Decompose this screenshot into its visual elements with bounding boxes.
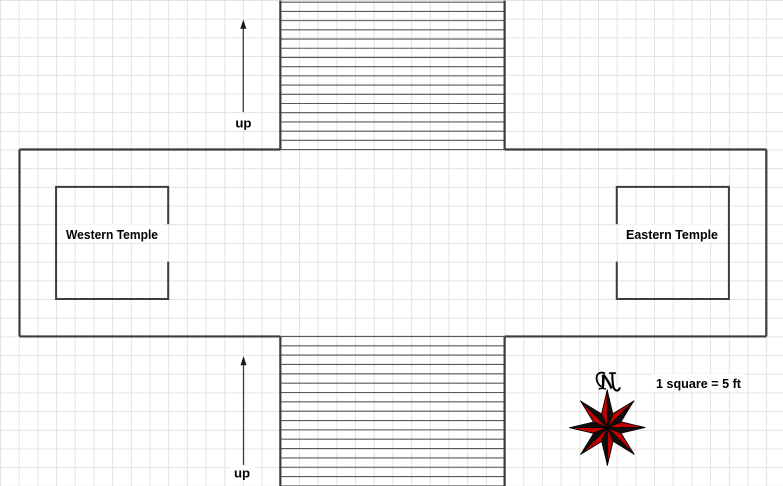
svg-text:up: up [234, 465, 250, 480]
svg-text:up: up [235, 116, 251, 131]
svg-text:Western Temple: Western Temple [66, 227, 158, 242]
svg-text:1 square = 5 ft: 1 square = 5 ft [656, 376, 742, 391]
svg-text:Eastern Temple: Eastern Temple [626, 227, 718, 242]
